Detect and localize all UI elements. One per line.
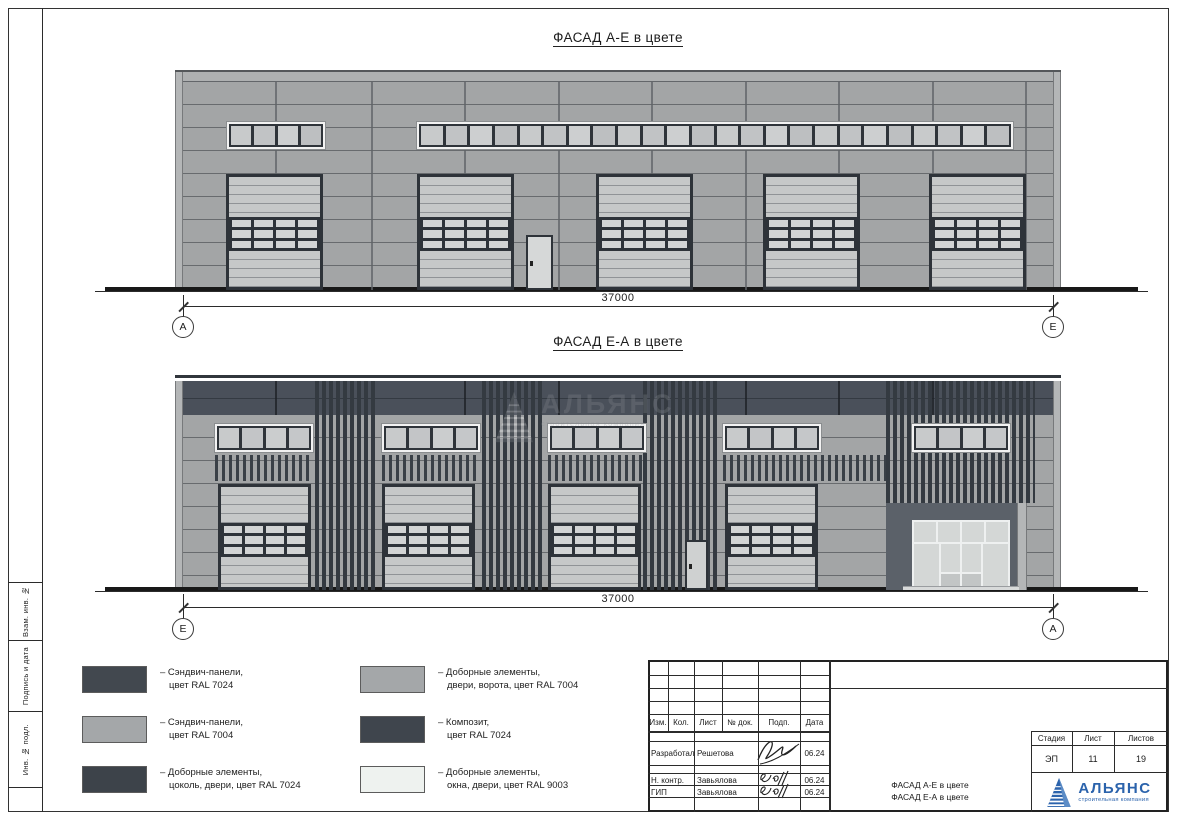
door-window — [489, 230, 508, 237]
door-window — [1001, 230, 1020, 237]
window-pane — [219, 428, 239, 448]
titleblock-line — [648, 785, 829, 786]
door-window — [769, 230, 788, 237]
window-pane — [766, 126, 788, 145]
window-pane — [242, 428, 262, 448]
door-leaf-panel — [962, 574, 981, 586]
legend-label-line2: цоколь, двери, цвет RAL 7024 — [160, 779, 301, 792]
legend-label-line1: – Доборные элементы, — [438, 666, 578, 679]
window-pane — [986, 428, 1006, 448]
corner-trim-left — [175, 381, 183, 590]
door-window — [752, 526, 770, 533]
slat-pilaster — [643, 381, 720, 590]
tb-role-developer: Разработал — [651, 747, 693, 759]
door-window-grid — [420, 217, 511, 251]
door-window — [298, 241, 317, 248]
corner-trim-right — [1053, 72, 1061, 290]
door-window — [624, 220, 643, 227]
door-window — [266, 536, 284, 543]
door-window — [813, 241, 832, 248]
transom-pane — [938, 522, 960, 542]
signature-developer — [753, 735, 803, 767]
panel-seam — [558, 82, 560, 290]
slat-strip — [215, 455, 313, 481]
window-pane — [470, 126, 492, 145]
composite-band-seam — [464, 381, 466, 415]
door-window — [646, 220, 665, 227]
window-pane — [864, 126, 886, 145]
door-window — [245, 526, 263, 533]
door-slats-bottom — [229, 251, 320, 287]
legend-label-line2: цвет RAL 7024 — [160, 679, 243, 692]
legend-label-line1: – Сэндвич-панели, — [160, 716, 243, 729]
door-window — [794, 547, 812, 554]
door-window — [668, 230, 687, 237]
legend-item: – Доборные элементы,окна, двери, цвет RA… — [360, 766, 568, 793]
door-window — [794, 526, 812, 533]
door-window — [752, 547, 770, 554]
window-pane — [456, 428, 476, 448]
sectional-door — [382, 484, 475, 590]
door-window — [935, 220, 954, 227]
door-slats-bottom — [551, 557, 638, 587]
door-window — [489, 220, 508, 227]
door-window — [245, 536, 263, 543]
legend-label-line1: – Доборные элементы, — [438, 766, 568, 779]
personnel-door — [685, 540, 708, 590]
legend-label: – Доборные элементы,цоколь, двери, цвет … — [160, 766, 301, 792]
legend-label: – Доборные элементы,двери, ворота, цвет … — [438, 666, 578, 692]
door-window-grid — [599, 217, 690, 251]
window-pane — [840, 126, 862, 145]
titleblock-line — [758, 660, 759, 812]
door-window — [467, 241, 486, 248]
door-slats-top — [728, 487, 815, 523]
door-window — [445, 241, 464, 248]
legend-swatch — [360, 716, 425, 743]
window-pane — [914, 126, 936, 145]
titleblock-line — [1031, 772, 1168, 773]
tb-header-cell: Изм. — [648, 716, 668, 729]
door-window — [575, 536, 593, 543]
door-window — [769, 241, 788, 248]
door-window — [276, 220, 295, 227]
door-slats-top — [599, 177, 690, 217]
door-window — [602, 230, 621, 237]
slat-strip — [723, 455, 886, 481]
door-window — [423, 220, 442, 227]
titleblock-line — [694, 660, 695, 812]
window-pane — [421, 126, 443, 145]
slat-strip — [382, 455, 480, 481]
door-window — [624, 241, 643, 248]
legend-label-line1: – Доборные элементы, — [160, 766, 301, 779]
door-window — [388, 526, 406, 533]
door-window — [668, 220, 687, 227]
window-pane — [278, 126, 298, 145]
door-window — [752, 536, 770, 543]
tb-header-cell: Кол. — [668, 716, 694, 729]
door-window — [935, 241, 954, 248]
tb-stage-value: 19 — [1114, 749, 1168, 769]
door-slats-top — [221, 487, 308, 523]
legend-label-line2: окна, двери, цвет RAL 9003 — [438, 779, 568, 792]
door-window — [388, 547, 406, 554]
composite-band-seam — [275, 381, 277, 415]
door-window — [979, 220, 998, 227]
titleblock-line — [648, 688, 829, 689]
door-window — [957, 241, 976, 248]
door-window — [596, 547, 614, 554]
logo-pyramid-icon — [1047, 778, 1071, 807]
logo-name: АЛЬЯНС — [1078, 781, 1151, 796]
door-window — [232, 241, 251, 248]
window-band — [417, 122, 1013, 149]
window-pane — [433, 428, 453, 448]
door-window — [835, 220, 854, 227]
titleblock-line — [648, 714, 829, 715]
door-window — [467, 230, 486, 237]
window-band — [912, 424, 1010, 452]
logo-tagline: строительная компания — [1078, 797, 1151, 803]
door-window — [276, 230, 295, 237]
window-pane — [987, 126, 1009, 145]
door-window — [773, 536, 791, 543]
window-pane — [939, 428, 959, 448]
legend-item: – Доборные элементы,цоколь, двери, цвет … — [82, 766, 301, 793]
door-window — [1001, 241, 1020, 248]
legend-swatch — [360, 666, 425, 693]
axis-mark-a2: А — [1042, 618, 1064, 640]
sectional-door — [929, 174, 1026, 290]
door-window — [451, 536, 469, 543]
window-pane — [495, 126, 517, 145]
facade2-title: ФАСАД Е-А в цвете — [183, 334, 1053, 349]
window-pane — [409, 428, 429, 448]
door-window — [445, 230, 464, 237]
company-logo: АЛЬЯНС строительная компания — [1031, 772, 1168, 812]
titleblock-line — [648, 797, 829, 798]
window-pane — [520, 126, 542, 145]
door-window — [791, 220, 810, 227]
entrance-storefront — [912, 520, 1010, 588]
tb-header-cell: № док. — [722, 716, 758, 729]
window-pane — [254, 126, 274, 145]
door-window — [254, 241, 273, 248]
storefront-lower — [914, 544, 1008, 586]
door-window — [254, 230, 273, 237]
facade-e-a-view — [175, 375, 1061, 587]
door-window — [979, 241, 998, 248]
window-pane — [266, 428, 286, 448]
door-window — [224, 526, 242, 533]
door-window — [575, 526, 593, 533]
window-pane — [552, 428, 572, 448]
door-window — [979, 230, 998, 237]
window-pane — [790, 126, 812, 145]
sectional-door — [417, 174, 514, 290]
door-slats-top — [932, 177, 1023, 217]
stamp-sidebar-label: Инв. № подл. — [21, 724, 30, 775]
door-window — [554, 547, 572, 554]
stamp-sidebar-label: Взам. инв. № — [21, 586, 30, 637]
door-handle — [689, 564, 692, 569]
frame-left-margin-line — [42, 8, 43, 812]
door-slats-top — [420, 177, 511, 217]
door-window — [602, 220, 621, 227]
legend-swatch — [82, 666, 147, 693]
titleblock-line — [800, 660, 801, 812]
door-window — [791, 230, 810, 237]
door-window — [731, 526, 749, 533]
door-slats-top — [766, 177, 857, 217]
transom-pane — [986, 522, 1008, 542]
door-handle — [530, 261, 533, 266]
entrance-double-door — [941, 544, 981, 586]
legend-label: – Сэндвич-панели,цвет RAL 7024 — [160, 666, 243, 692]
ground-line-2-thin — [95, 591, 1148, 592]
door-window — [224, 536, 242, 543]
window-pane — [569, 126, 591, 145]
door-window-grid — [766, 217, 857, 251]
window-pane — [727, 428, 747, 448]
window-band — [227, 122, 325, 149]
legend-item: – Сэндвич-панели,цвет RAL 7004 — [82, 716, 243, 743]
door-window — [409, 526, 427, 533]
titleblock-line — [648, 741, 829, 742]
window-pane — [797, 428, 817, 448]
window-pane — [815, 126, 837, 145]
tb-stage-header: Листов — [1114, 733, 1168, 744]
door-window — [489, 241, 508, 248]
door-window — [409, 547, 427, 554]
window-pane — [386, 428, 406, 448]
door-window — [835, 230, 854, 237]
titleblock-line — [1031, 731, 1168, 732]
storefront-side-glass — [983, 544, 1008, 586]
door-window — [388, 536, 406, 543]
facade-a-e-view — [175, 70, 1061, 288]
storefront-transom — [914, 522, 1008, 542]
titleblock-line — [648, 675, 829, 676]
door-slats-bottom — [221, 557, 308, 587]
axis-mark-e2: Е — [172, 618, 194, 640]
door-window-grid — [385, 523, 472, 557]
door-window — [451, 526, 469, 533]
door-window — [409, 536, 427, 543]
window-pane — [446, 126, 468, 145]
slat-pilaster — [482, 381, 545, 590]
door-window-grid — [551, 523, 638, 557]
titleblock-line — [829, 660, 831, 812]
door-slats-top — [551, 487, 638, 523]
door-window-grid — [221, 523, 308, 557]
door-slats-bottom — [385, 557, 472, 587]
door-slats-bottom — [766, 251, 857, 287]
slat-pilaster — [315, 381, 378, 590]
door-window — [266, 547, 284, 554]
legend-swatch — [82, 716, 147, 743]
door-window — [794, 536, 812, 543]
door-window — [254, 220, 273, 227]
door-leaf — [941, 544, 960, 586]
window-pane — [774, 428, 794, 448]
parapet-cap — [183, 72, 1053, 82]
door-window — [554, 526, 572, 533]
tb-stage-value: 11 — [1072, 749, 1114, 769]
door-window — [287, 526, 305, 533]
sectional-door — [548, 484, 641, 590]
window-band — [548, 424, 646, 452]
window-pane — [289, 428, 309, 448]
window-band — [382, 424, 480, 452]
door-slats-top — [229, 177, 320, 217]
legend-label: – Сэндвич-панели,цвет RAL 7004 — [160, 716, 243, 742]
tb-stage-header: Лист — [1072, 733, 1114, 744]
dimension-line — [183, 306, 1054, 307]
door-slats-bottom — [599, 251, 690, 287]
titleblock-line — [648, 701, 829, 702]
stamp-sidebar-box: Инв. № подл. — [8, 711, 42, 788]
tb-header-cell: Дата — [800, 716, 829, 729]
window-pane — [667, 126, 689, 145]
door-leaf — [962, 544, 981, 586]
door-window — [957, 220, 976, 227]
window-pane — [916, 428, 936, 448]
composite-band-seam — [838, 381, 840, 415]
door-window — [232, 220, 251, 227]
transom-pane — [962, 522, 984, 542]
tb-name-developer: Решетова — [697, 747, 757, 759]
tb-header-cell: Подп. — [758, 716, 800, 729]
door-window — [423, 230, 442, 237]
corner-trim-left — [175, 72, 183, 290]
dim-value-facade1: 37000 — [183, 292, 1053, 304]
door-window — [276, 241, 295, 248]
door-window — [596, 526, 614, 533]
door-window — [773, 547, 791, 554]
window-pane — [593, 126, 615, 145]
legend-label-line2: двери, ворота, цвет RAL 7004 — [438, 679, 578, 692]
legend-item: – Доборные элементы,двери, ворота, цвет … — [360, 666, 578, 693]
sectional-door — [763, 174, 860, 290]
door-window — [445, 220, 464, 227]
door-window — [575, 547, 593, 554]
facade1-title: ФАСАД А-Е в цвете — [183, 30, 1053, 45]
door-leaf-glass — [941, 544, 960, 572]
door-window-grid — [932, 217, 1023, 251]
legend-swatch — [360, 766, 425, 793]
panel-seam — [371, 82, 373, 290]
door-window — [646, 230, 665, 237]
facade2-title-text: ФАСАД Е-А в цвете — [553, 334, 683, 351]
door-window — [646, 241, 665, 248]
window-pane — [643, 126, 665, 145]
dimension-line — [183, 607, 1054, 608]
window-pane — [618, 126, 640, 145]
window-pane — [231, 126, 251, 145]
facade1-title-text: ФАСАД А-Е в цвете — [553, 30, 683, 47]
corner-trim-right — [1053, 381, 1061, 590]
legend-label-line2: цвет RAL 7004 — [160, 729, 243, 742]
window-pane — [963, 428, 983, 448]
door-window — [731, 536, 749, 543]
window-band — [215, 424, 313, 452]
legend-swatch — [82, 766, 147, 793]
door-window — [602, 241, 621, 248]
window-pane — [622, 428, 642, 448]
composite-band-seam — [745, 381, 747, 415]
sectional-door — [596, 174, 693, 290]
slat-strip — [548, 455, 646, 481]
titleblock-line — [829, 688, 1168, 689]
door-slats-bottom — [420, 251, 511, 287]
door-window — [266, 526, 284, 533]
door-window-grid — [229, 217, 320, 251]
legend-label: – Доборные элементы,окна, двери, цвет RA… — [438, 766, 568, 792]
door-window — [813, 230, 832, 237]
sectional-door — [218, 484, 311, 590]
door-window — [731, 547, 749, 554]
tb-header-cell: Лист — [694, 716, 722, 729]
door-window — [791, 241, 810, 248]
entrance-corner-trim — [1017, 503, 1027, 590]
door-window — [467, 220, 486, 227]
door-window — [773, 526, 791, 533]
sectional-door — [725, 484, 818, 590]
door-window — [423, 241, 442, 248]
door-slats-bottom — [728, 557, 815, 587]
panel-seam — [745, 82, 747, 290]
door-window — [668, 241, 687, 248]
window-pane — [963, 126, 985, 145]
drawing-sheet: Взам. инв. №Подпись и датаИнв. № подл. Ф… — [0, 0, 1177, 819]
window-pane — [544, 126, 566, 145]
door-window — [430, 526, 448, 533]
door-window — [1001, 220, 1020, 227]
legend-label: – Композит,цвет RAL 7024 — [438, 716, 511, 742]
stamp-sidebar-label: Подпись и дата — [21, 647, 30, 705]
door-window — [451, 547, 469, 554]
door-window — [298, 230, 317, 237]
legend-label-line2: цвет RAL 7024 — [438, 729, 511, 742]
door-window — [245, 547, 263, 554]
storefront-side-glass — [914, 544, 939, 586]
stamp-sidebar-box: Подпись и дата — [8, 640, 42, 711]
tb-stage-header: Стадия — [1031, 733, 1072, 744]
tb-stage-value: ЭП — [1031, 749, 1072, 769]
composite-band-seam — [558, 381, 560, 415]
doc-title-line1: ФАСАД А-Е в цвете — [829, 779, 1031, 790]
door-window — [596, 536, 614, 543]
door-leaf-glass — [962, 544, 981, 572]
door-window — [769, 220, 788, 227]
door-window — [224, 547, 242, 554]
personnel-door — [526, 235, 553, 290]
legend-item: – Композит,цвет RAL 7024 — [360, 716, 511, 743]
door-window — [430, 536, 448, 543]
stamp-sidebar-box: Взам. инв. № — [8, 582, 42, 640]
window-band — [723, 424, 821, 452]
door-window — [813, 220, 832, 227]
door-window — [617, 536, 635, 543]
transom-pane — [914, 522, 936, 542]
door-slats-top — [385, 487, 472, 523]
window-pane — [575, 428, 595, 448]
tb-date-developer: 06.24 — [800, 747, 829, 759]
door-window — [617, 547, 635, 554]
window-pane — [717, 126, 739, 145]
